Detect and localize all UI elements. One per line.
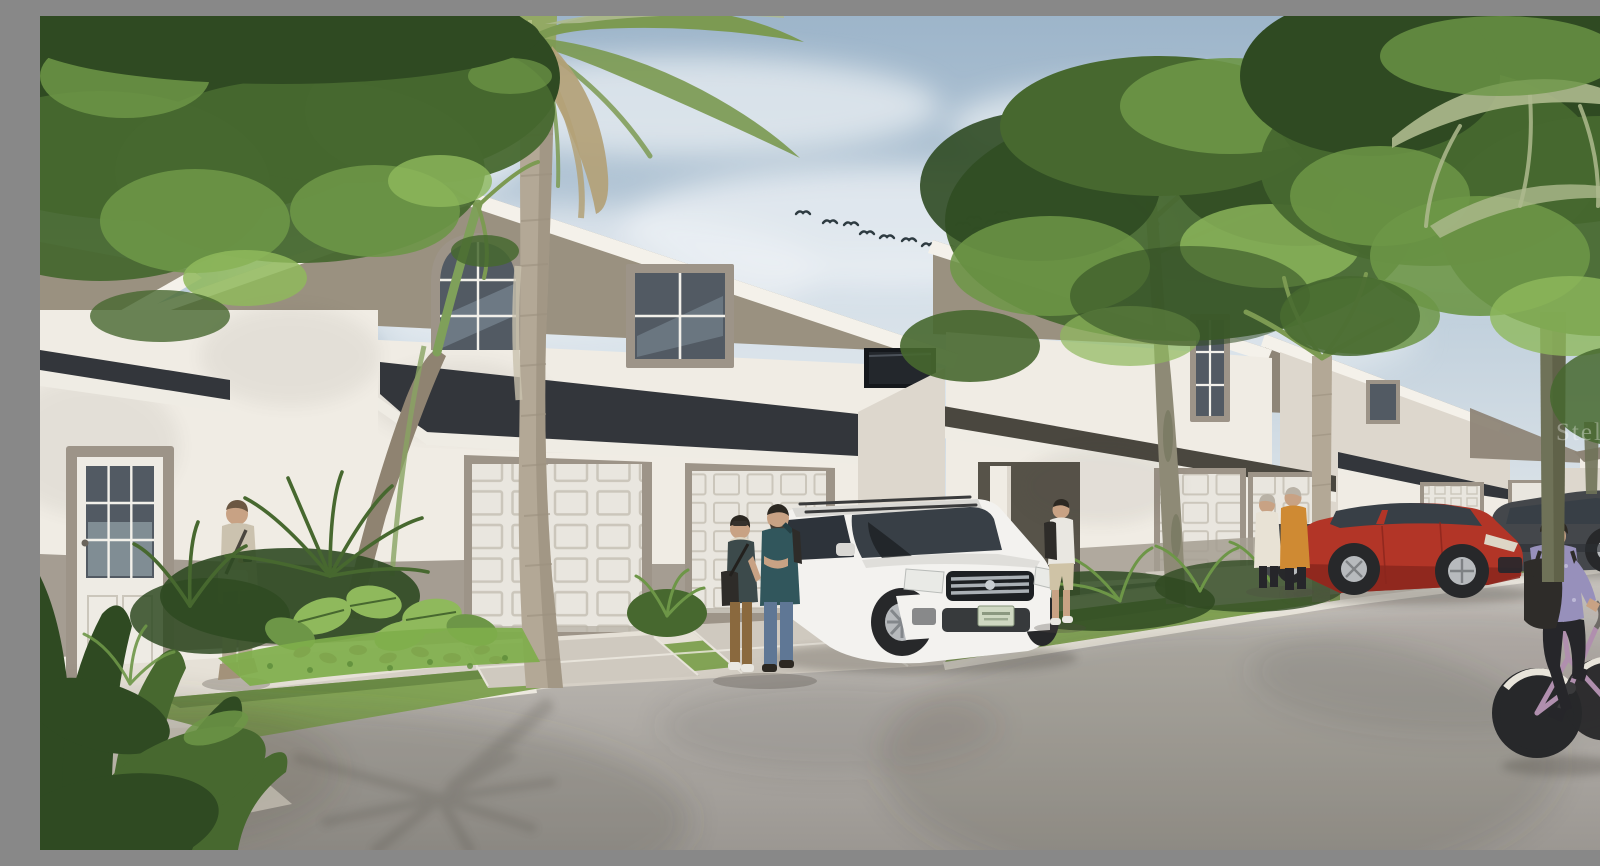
headlight-left [904,569,944,593]
side-mirror [836,543,855,556]
garage-door-1 [464,455,652,647]
far-upstairs-window [1366,380,1400,424]
watermark: Stellar [1556,419,1600,446]
front-fascia [896,567,1052,640]
door-handle [82,540,89,547]
license-plate [978,606,1014,626]
townhome-rendering: Stellar [40,16,1600,850]
upstairs-window [626,264,734,368]
